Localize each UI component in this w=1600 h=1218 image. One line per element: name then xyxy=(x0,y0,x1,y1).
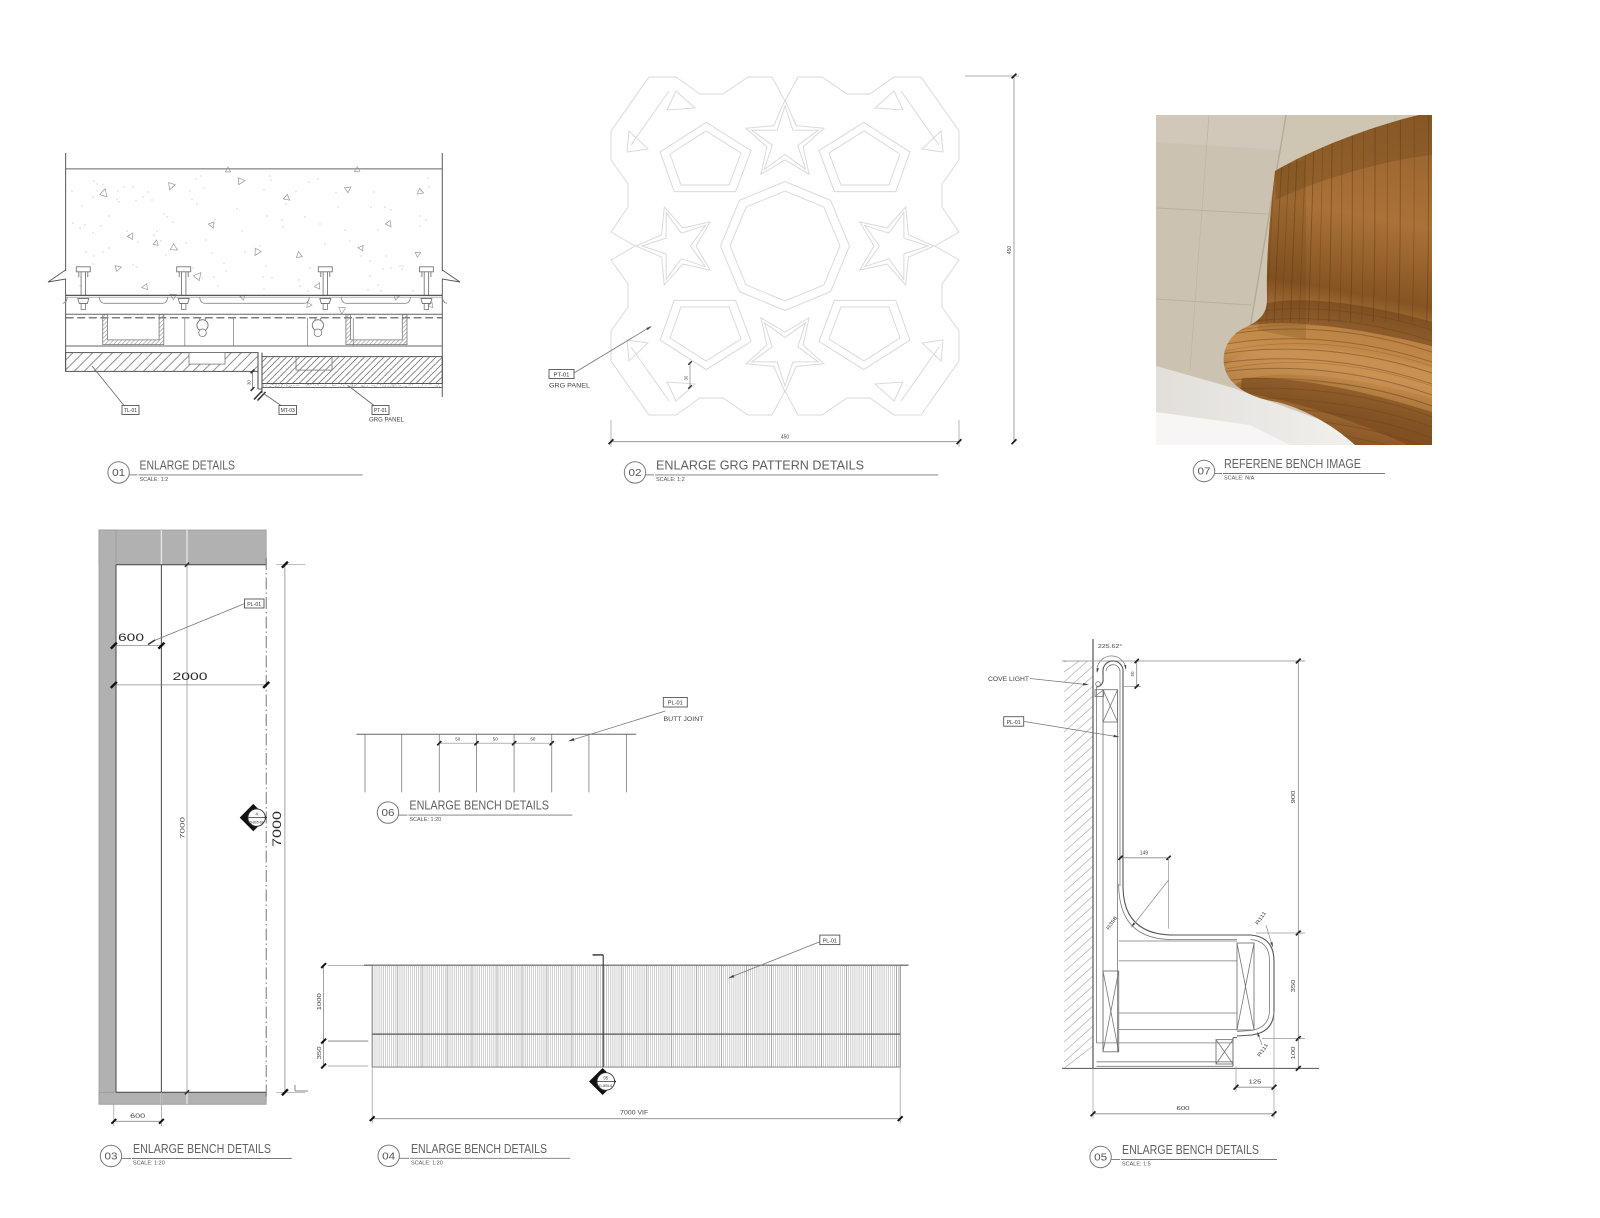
svg-text:MT-03: MT-03 xyxy=(281,408,295,414)
svg-text:COVE LIGHT: COVE LIGHT xyxy=(988,676,1029,683)
svg-text:2000: 2000 xyxy=(173,671,208,683)
svg-text:7000: 7000 xyxy=(181,816,187,839)
svg-text:SCALE: 1:20: SCALE: 1:20 xyxy=(133,1161,165,1167)
svg-text:50: 50 xyxy=(530,737,536,742)
svg-text:05: 05 xyxy=(1094,1153,1108,1164)
svg-text:350: 350 xyxy=(317,1046,323,1059)
svg-text:SCALE: N/A: SCALE: N/A xyxy=(1224,476,1255,482)
svg-text:07: 07 xyxy=(1198,467,1212,478)
svg-text:149: 149 xyxy=(1140,850,1149,856)
svg-text:100: 100 xyxy=(1291,1047,1297,1060)
svg-text:ENLARGE BENCH DETAILS: ENLARGE BENCH DETAILS xyxy=(133,1141,271,1156)
svg-text:450: 450 xyxy=(781,435,790,441)
svg-text:ENLARGE DETAILS: ENLARGE DETAILS xyxy=(140,457,236,472)
svg-text:ENLARGE BENCH DETAILS: ENLARGE BENCH DETAILS xyxy=(411,1141,547,1156)
svg-text:PL-01: PL-01 xyxy=(668,701,683,707)
svg-text:SCALE: 1:20: SCALE: 1:20 xyxy=(409,817,441,823)
svg-text:600: 600 xyxy=(118,632,144,644)
svg-text:GRG PANEL: GRG PANEL xyxy=(549,383,590,390)
svg-text:PT-01: PT-01 xyxy=(374,408,387,414)
svg-text:50: 50 xyxy=(493,737,499,742)
svg-text:PL-01: PL-01 xyxy=(1007,720,1021,726)
svg-text:GRG PANEL: GRG PANEL xyxy=(369,417,404,424)
svg-text:125: 125 xyxy=(1249,1080,1262,1086)
svg-text:50: 50 xyxy=(1130,671,1135,677)
svg-text:600: 600 xyxy=(130,1114,146,1120)
svg-text:900: 900 xyxy=(1291,791,1297,804)
svg-text:ENLARGE BENCH DETAILS: ENLARGE BENCH DETAILS xyxy=(409,798,549,813)
svg-text:01: 01 xyxy=(112,468,126,479)
svg-text:SCALE: 1:20: SCALE: 1:20 xyxy=(411,1160,443,1166)
svg-text:05: 05 xyxy=(603,1075,608,1080)
svg-text:350: 350 xyxy=(1291,980,1297,993)
svg-text:ENLARGE BENCH DETAILS: ENLARGE BENCH DETAILS xyxy=(1122,1142,1259,1157)
svg-text:D-805-68: D-805-68 xyxy=(250,820,264,824)
svg-text:SCALE: 1:2: SCALE: 1:2 xyxy=(140,477,169,483)
svg-text:7000 VIF: 7000 VIF xyxy=(620,1111,648,1117)
svg-text:PL-01: PL-01 xyxy=(247,602,261,608)
svg-text:600: 600 xyxy=(1177,1106,1190,1112)
svg-text:TL-01: TL-01 xyxy=(124,408,137,414)
svg-text:PL-01: PL-01 xyxy=(823,938,837,944)
svg-text:BUTT JOINT: BUTT JOINT xyxy=(664,716,704,723)
svg-text:225.62°: 225.62° xyxy=(1098,644,1122,650)
svg-text:1000: 1000 xyxy=(317,993,323,1010)
svg-text:02: 02 xyxy=(629,468,643,479)
svg-text:7000: 7000 xyxy=(270,811,284,847)
svg-text:PT-01: PT-01 xyxy=(554,372,570,378)
svg-text:04: 04 xyxy=(382,1151,396,1162)
svg-text:30: 30 xyxy=(247,380,252,385)
svg-text:REFERENE BENCH IMAGE: REFERENE BENCH IMAGE xyxy=(1224,456,1361,471)
svg-text:SCALE: 1:2: SCALE: 1:2 xyxy=(656,477,685,483)
svg-text:03: 03 xyxy=(105,1152,119,1163)
svg-text:06: 06 xyxy=(382,808,396,819)
svg-text:D-805-6: D-805-6 xyxy=(599,1084,612,1088)
svg-text:50: 50 xyxy=(455,737,461,742)
svg-text:450: 450 xyxy=(1007,246,1013,255)
svg-text:30: 30 xyxy=(684,375,689,380)
svg-text:SCALE: 1:5: SCALE: 1:5 xyxy=(1122,1162,1151,1168)
svg-text:ENLARGE GRG PATTERN DETAILS: ENLARGE GRG PATTERN DETAILS xyxy=(656,457,864,472)
